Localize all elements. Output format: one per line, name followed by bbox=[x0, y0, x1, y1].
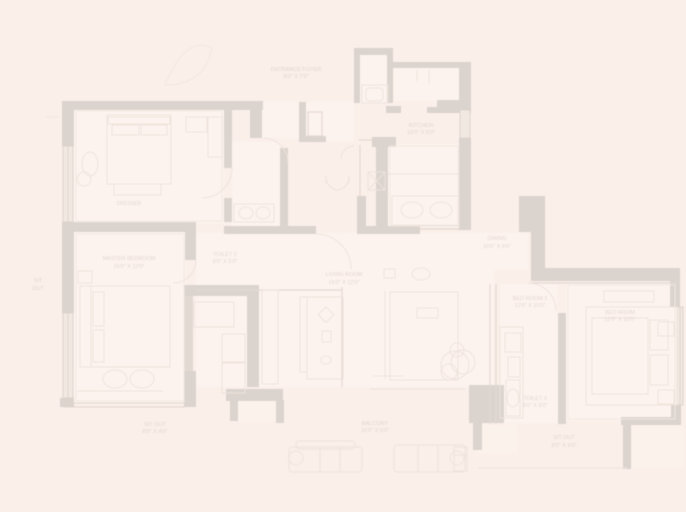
svg-text:10'0" X 8'0": 10'0" X 8'0" bbox=[407, 130, 435, 136]
svg-text:ENTRANCE FOYER: ENTRANCE FOYER bbox=[271, 67, 322, 73]
svg-text:SIT: SIT bbox=[34, 278, 43, 284]
svg-text:8'0" X 4'0": 8'0" X 4'0" bbox=[143, 429, 168, 435]
svg-text:SIT OUT: SIT OUT bbox=[553, 435, 575, 441]
svg-text:12'0" X 10'0": 12'0" X 10'0" bbox=[604, 317, 635, 323]
svg-text:BED ROOM 3: BED ROOM 3 bbox=[513, 296, 548, 302]
svg-text:KITCHEN: KITCHEN bbox=[409, 123, 433, 129]
svg-text:15'0" X 12'0": 15'0" X 12'0" bbox=[328, 280, 359, 286]
svg-text:8'0" X 5'0": 8'0" X 5'0" bbox=[213, 259, 238, 265]
svg-text:15'0" X 12'0": 15'0" X 12'0" bbox=[113, 264, 144, 270]
svg-text:LIVING ROOM: LIVING ROOM bbox=[326, 272, 363, 278]
svg-text:15'0" X 5'0": 15'0" X 5'0" bbox=[361, 428, 389, 434]
svg-text:DRESSER: DRESSER bbox=[117, 201, 142, 207]
svg-text:SIT OUT: SIT OUT bbox=[144, 422, 166, 428]
svg-text:8'0" X 7'0": 8'0" X 7'0" bbox=[284, 74, 309, 80]
svg-text:OUT: OUT bbox=[32, 286, 44, 292]
svg-text:10'0" X 8'6": 10'0" X 8'6" bbox=[483, 244, 511, 250]
svg-text:12'0" X 10'0": 12'0" X 10'0" bbox=[514, 303, 545, 309]
svg-text:TOILET 3: TOILET 3 bbox=[523, 396, 547, 402]
svg-text:BED ROOM: BED ROOM bbox=[605, 310, 635, 316]
svg-text:MASTER BEDROOM: MASTER BEDROOM bbox=[103, 256, 156, 262]
svg-text:DINING: DINING bbox=[487, 236, 506, 242]
svg-text:TOILET 2: TOILET 2 bbox=[213, 252, 237, 258]
svg-text:BALCONY: BALCONY bbox=[362, 421, 389, 427]
svg-text:8'0" X 4'0": 8'0" X 4'0" bbox=[552, 443, 577, 449]
svg-text:8'0" X 5'0": 8'0" X 5'0" bbox=[523, 403, 548, 409]
